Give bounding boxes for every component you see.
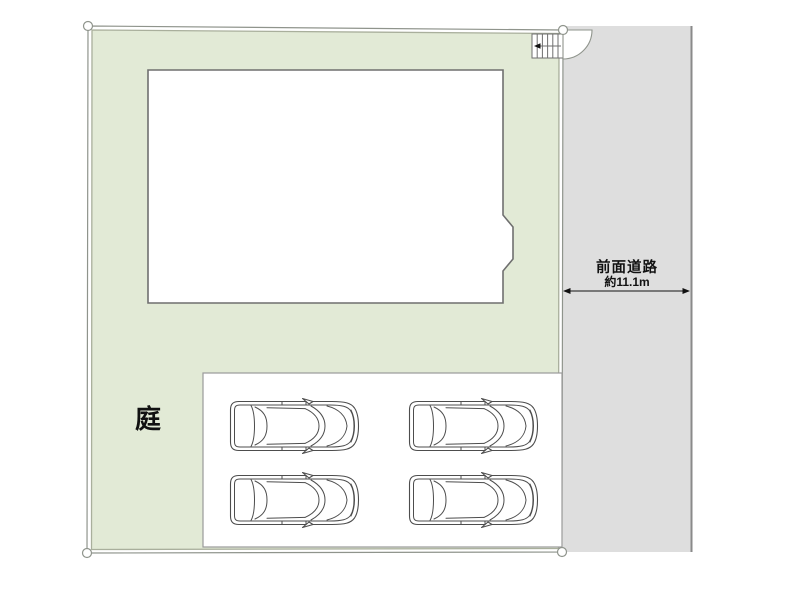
car-3 (231, 473, 359, 528)
front-road (563, 26, 692, 552)
building-footprint (148, 70, 513, 303)
car-2 (410, 399, 538, 454)
road-width-label: 約11.1m (604, 274, 649, 289)
corner-marker-top-left (84, 22, 93, 31)
stairs (532, 34, 563, 58)
road-surface (563, 26, 692, 552)
corner-marker-top-right (559, 26, 568, 35)
corner-marker-bottom-right (558, 548, 567, 557)
site-plan: 庭 前面道路 約11.1m (0, 0, 800, 600)
corner-marker-bottom-left (83, 549, 92, 558)
garden-label: 庭 (135, 404, 161, 434)
road-name-label: 前面道路 (596, 258, 658, 276)
car-1 (231, 399, 359, 454)
car-4 (410, 473, 538, 528)
